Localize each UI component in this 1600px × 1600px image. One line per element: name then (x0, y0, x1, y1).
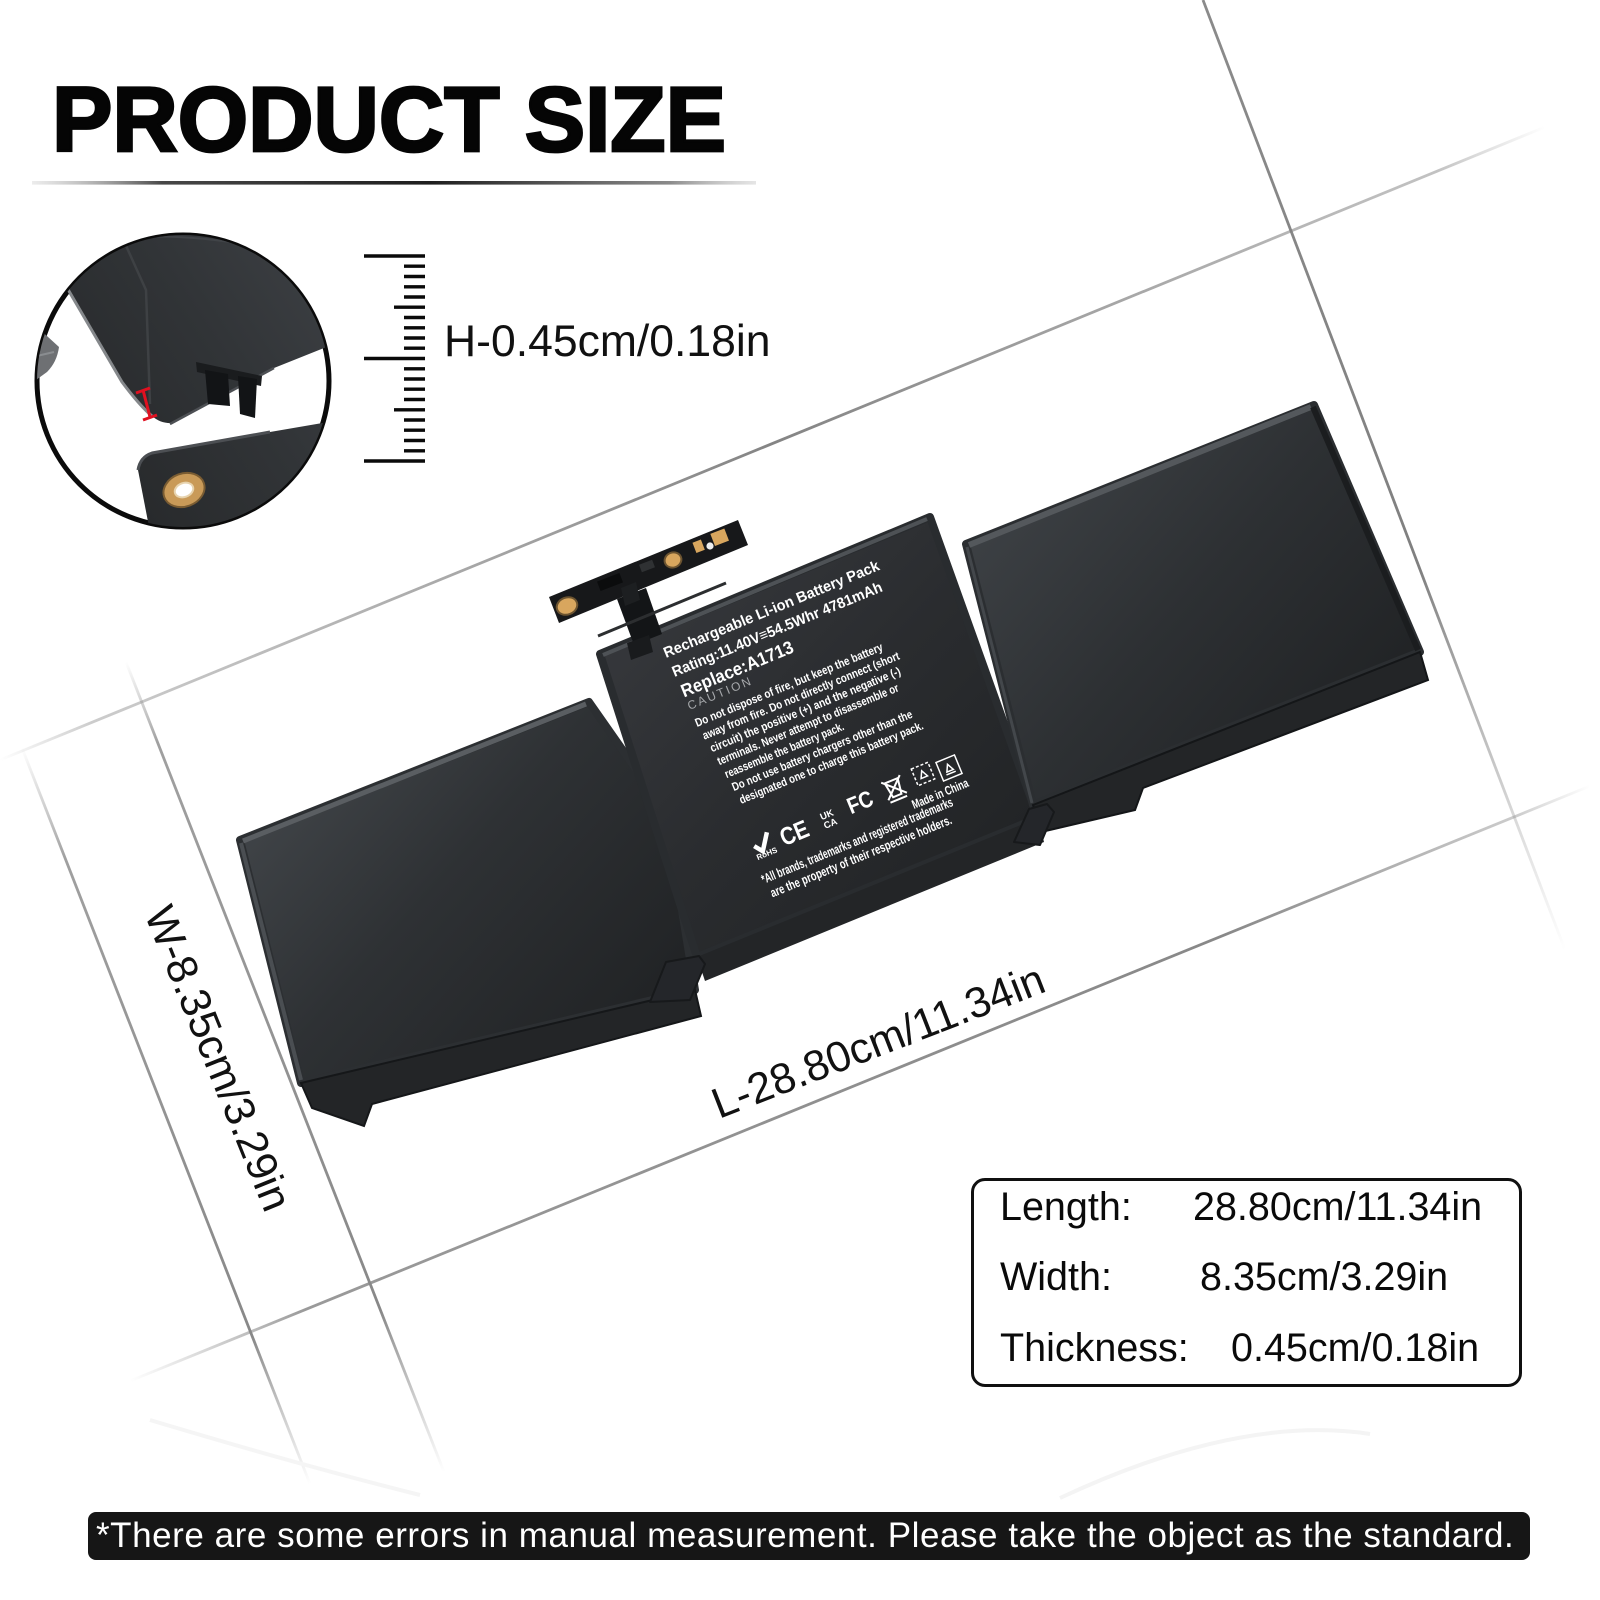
svg-text:L-28.80cm/11.34in: L-28.80cm/11.34in (705, 955, 1051, 1128)
